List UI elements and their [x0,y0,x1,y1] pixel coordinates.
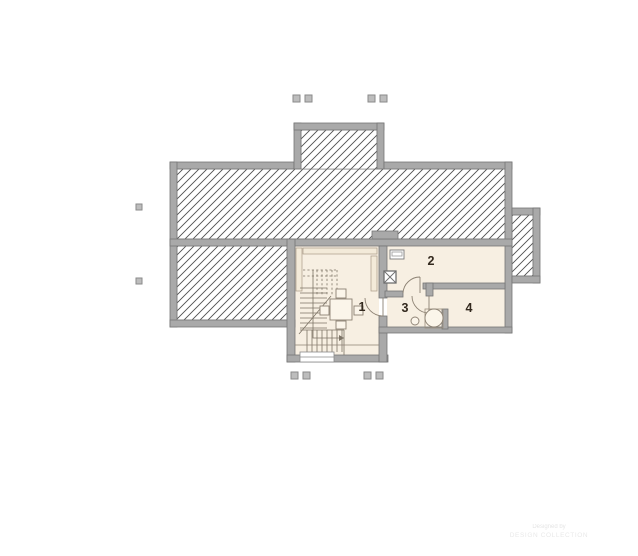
floor-plan-page: 1 2 3 4 Designed by DESIGN COLLECTION [0,0,638,556]
hatched-roof-area-upper [177,169,505,239]
wall-bump-bottom [512,276,540,283]
built-in-top [303,248,377,254]
wall-protrusion-right [377,123,384,169]
marker-top-3 [368,95,375,102]
wall-chimney-notch [372,231,398,239]
wall-room1-right-lower [379,316,387,362]
room-1-label: 1 [359,300,366,314]
wall-bump-right [533,208,540,283]
marker-bottom-4 [376,372,383,379]
marker-left-2 [136,278,142,284]
marker-bottom-2 [303,372,310,379]
wall-top-right [384,162,512,169]
marker-bottom-1 [291,372,298,379]
window-opening [300,352,334,362]
dining-table [330,299,352,320]
hatched-roof-area-lower-left [177,246,287,320]
hatched-roof-area-top-protrusion [301,130,377,169]
marker-top-2 [305,95,312,102]
stairwell-wall-strip [296,248,302,291]
room-3-label: 3 [402,301,409,315]
room-4-label: 4 [466,301,473,315]
marker-top-4 [380,95,387,102]
wall-between-2-3 [385,291,403,297]
marker-bottom-3 [364,372,371,379]
chair-bottom [336,321,346,329]
floor-drain [411,317,419,325]
floor-plan-drawing: 1 2 3 4 Designed by DESIGN COLLECTION [0,0,638,556]
room-floors [295,246,505,355]
wall-room1-left [287,239,295,362]
wall-right [505,162,512,333]
watermark-line2: DESIGN COLLECTION [510,532,588,539]
marker-left-1 [136,204,142,210]
marker-top-1 [293,95,300,102]
wall-door-stub [426,283,433,296]
room-2-label: 2 [428,254,435,268]
chimney-flue-icon [384,271,396,283]
hatched-roof-area-right-bump [512,215,533,276]
wall-lower-left-bottom [170,320,295,327]
watermark: Designed by DESIGN COLLECTION [510,524,588,539]
wall-protrusion-top [294,123,384,130]
boiler [425,309,443,327]
chair-top [336,289,346,298]
wall-between-2-4 [423,283,505,289]
watermark-line1: Designed by [532,524,565,530]
wall-middle [170,239,512,246]
chair-left [320,306,329,315]
wall-top-left [170,162,294,169]
electrical-panel-icon [390,250,404,259]
built-in-right [371,256,377,291]
